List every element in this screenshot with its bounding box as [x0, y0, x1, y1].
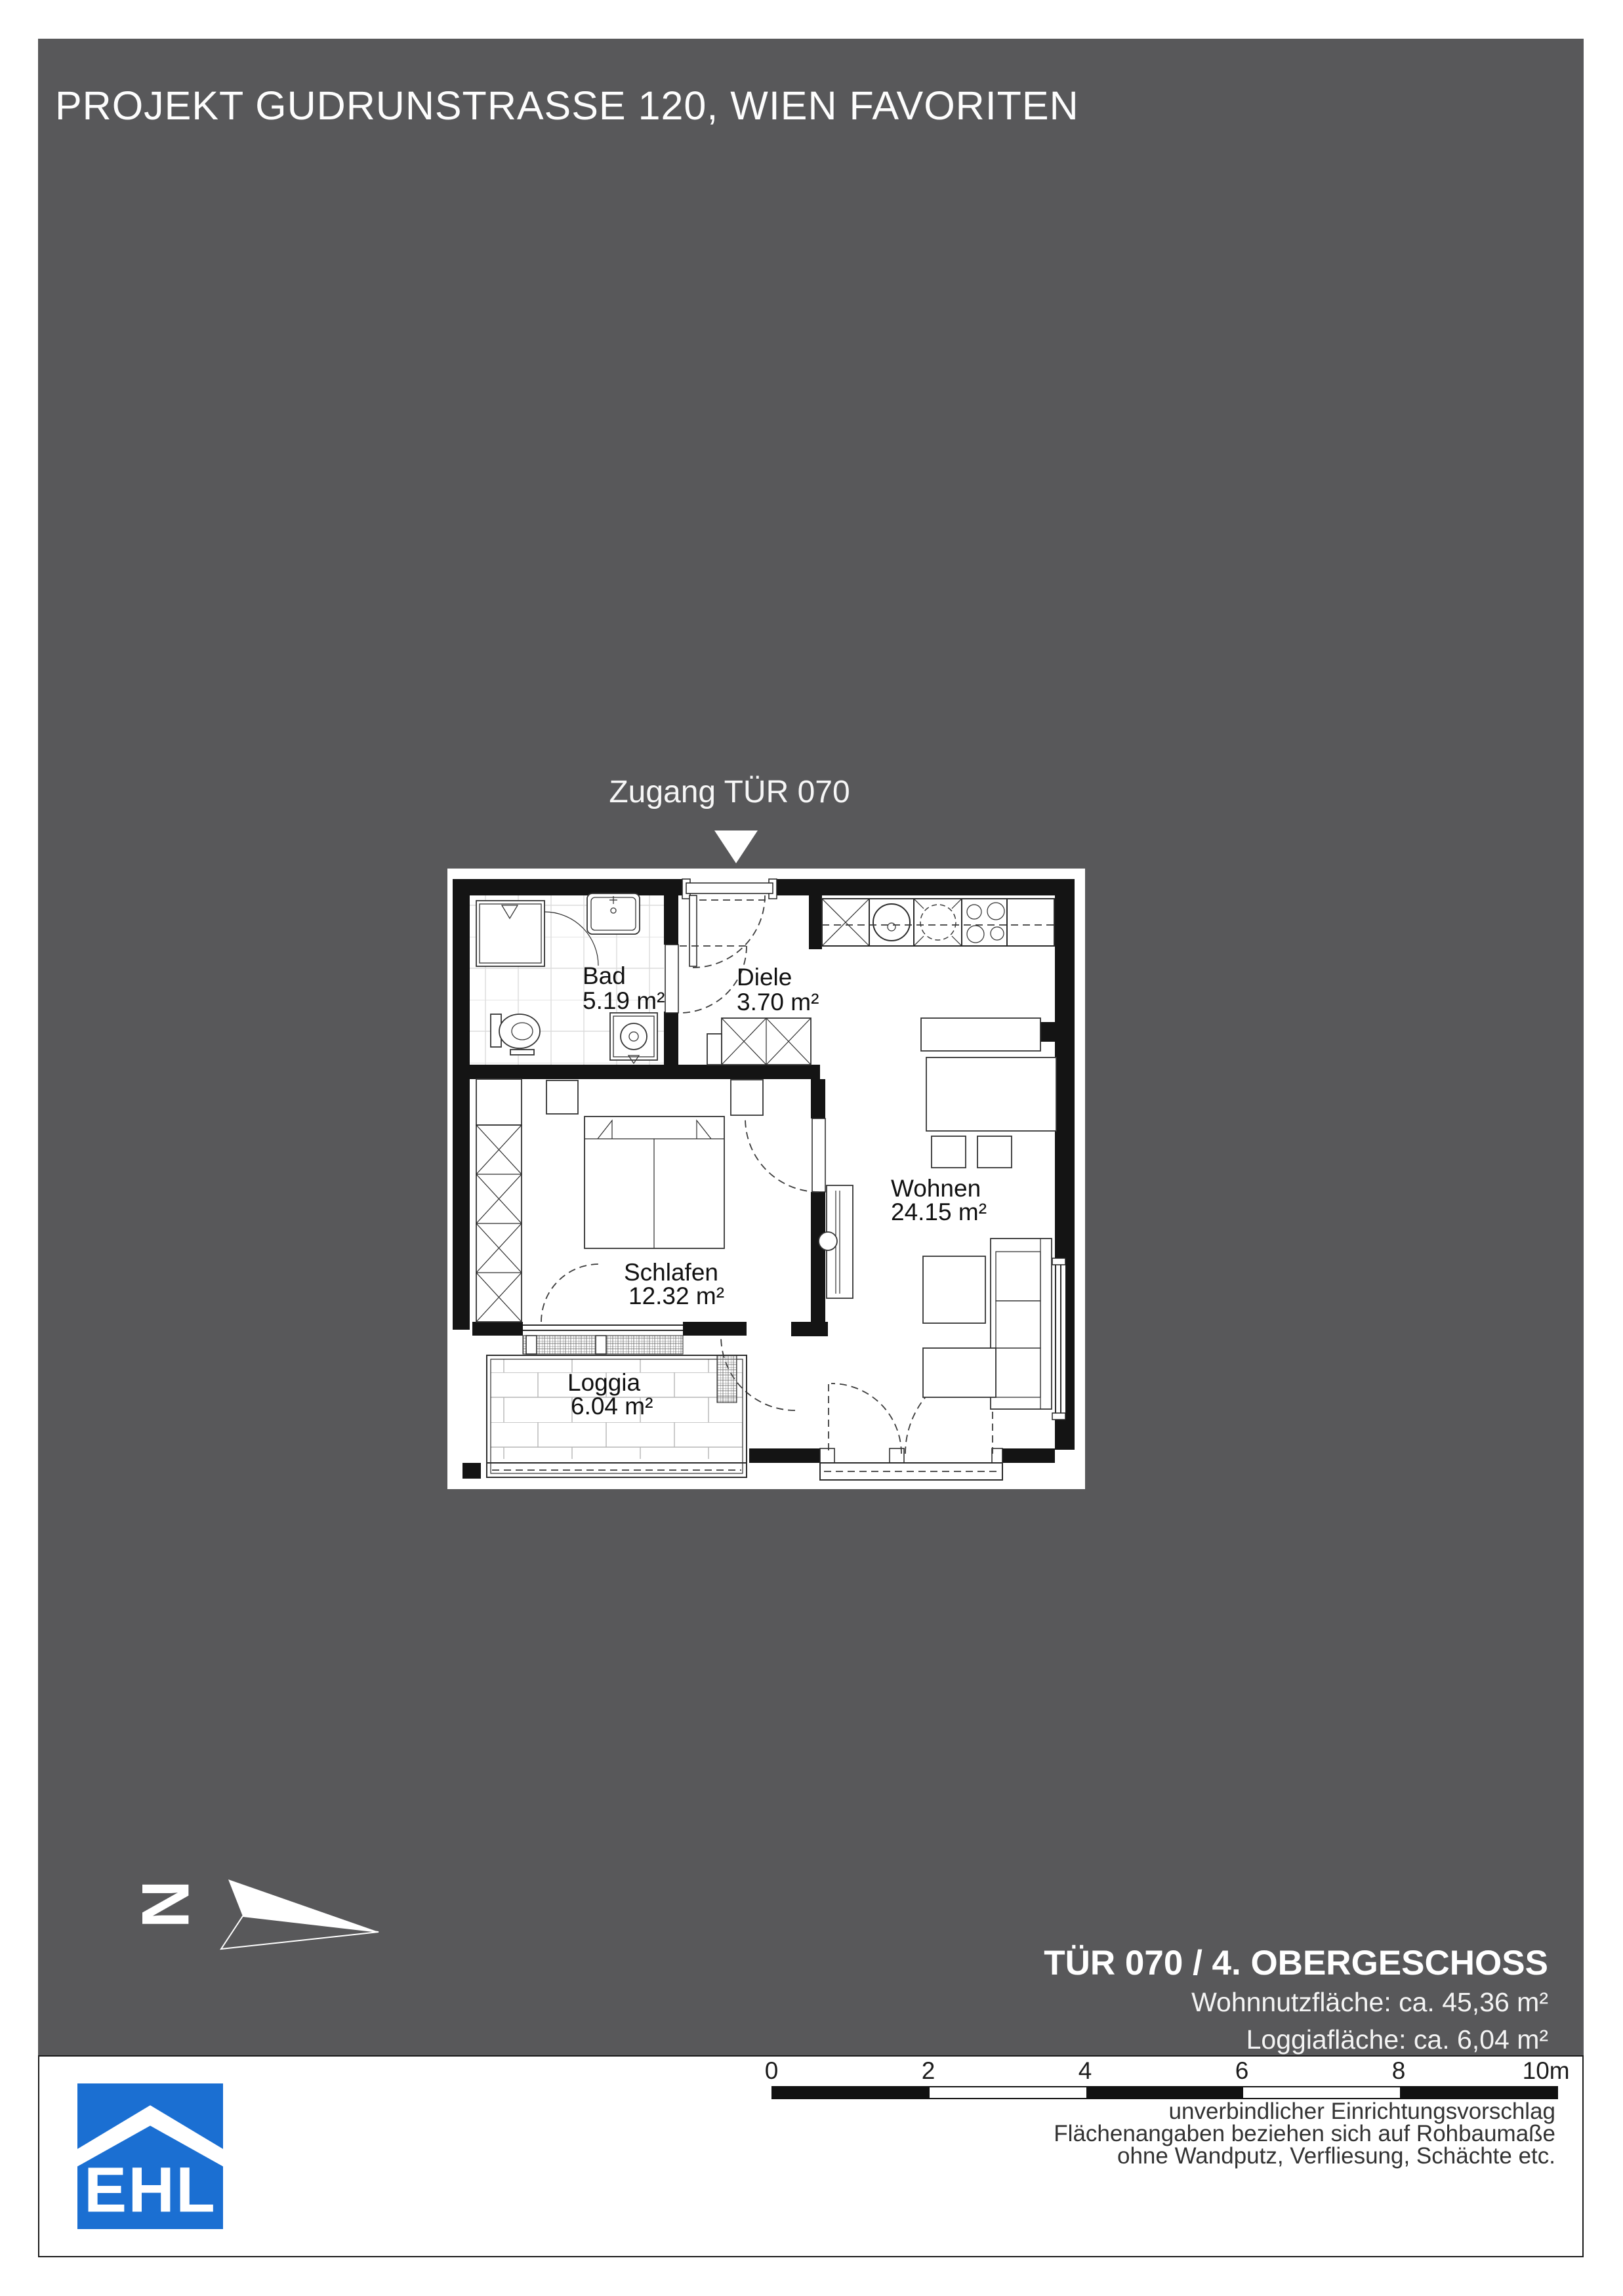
- room-label-loggia: Loggia: [567, 1369, 641, 1396]
- washbasin: [587, 893, 640, 934]
- north-letter: N: [131, 1880, 203, 1929]
- page-title: PROJEKT GUDRUNSTRASSE 120, WIEN FAVORITE…: [55, 83, 1079, 129]
- entrance-triangle-icon: [714, 830, 758, 863]
- scale-tick-10m: 10m: [1523, 2057, 1570, 2085]
- bedroom-closet: [476, 1079, 522, 1322]
- scale-tick-6: 6: [1235, 2057, 1249, 2085]
- room-area-schlafen: 12.32 m²: [628, 1282, 724, 1309]
- unit-title: TÜR 070 / 4. OBERGESCHOSS: [1044, 1943, 1548, 1984]
- kitchen-counter: [822, 899, 1054, 946]
- scale-tick-8: 8: [1392, 2057, 1406, 2085]
- access-door-label: Zugang TÜR 070: [609, 774, 850, 810]
- bedroom-door: [745, 1118, 825, 1192]
- disclaimer-block: unverbindlicher Einrichtungsvorschlag Fl…: [1054, 2101, 1555, 2167]
- disclaimer-line-1: unverbindlicher Einrichtungsvorschlag: [1054, 2101, 1555, 2123]
- nightstand-right: [731, 1080, 763, 1115]
- loggia-area-text: Loggiafläche: ca. 6,04 m²: [1044, 2021, 1548, 2059]
- nightstand-left: [546, 1080, 578, 1114]
- room-label-bad: Bad: [583, 962, 626, 989]
- entrance-door: [682, 879, 777, 968]
- north-arrow-icon: N: [131, 1871, 394, 1956]
- room-area-bad: 5.19 m²: [583, 987, 665, 1014]
- double-bed: [585, 1117, 724, 1248]
- side-window: [1052, 1258, 1065, 1420]
- scale-tick-2: 2: [922, 2057, 935, 2085]
- scale-bar: [771, 2086, 1558, 2099]
- hall-wardrobe: [707, 1018, 811, 1065]
- scale-tick-0: 0: [765, 2057, 779, 2085]
- ehl-logo-text: EHL: [84, 2154, 216, 2225]
- room-area-wohnen: 24.15 m²: [891, 1199, 987, 1225]
- ehl-logo: EHL: [77, 2083, 223, 2229]
- unit-info-block: TÜR 070 / 4. OBERGESCHOSS Wohnnutzfläche…: [1044, 1943, 1548, 2059]
- room-label-diele: Diele: [737, 964, 792, 991]
- room-area-diele: 3.70 m²: [737, 989, 819, 1015]
- disclaimer-line-2: Flächenangaben beziehen sich auf Rohbaum…: [1054, 2123, 1555, 2145]
- floor-plan: Bad 5.19 m² Diele 3.70 m² Wohnen 24.15 m…: [453, 874, 1079, 1484]
- coffee-table: [923, 1256, 985, 1323]
- room-area-loggia: 6.04 m²: [571, 1393, 653, 1420]
- scale-tick-4: 4: [1079, 2057, 1092, 2085]
- dining-set: [921, 1018, 1056, 1168]
- toilet: [491, 1014, 540, 1048]
- disclaimer-line-3: ohne Wandputz, Verfliesung, Schächte etc…: [1054, 2145, 1555, 2167]
- room-label-schlafen: Schlafen: [624, 1259, 718, 1286]
- bath-door: [665, 945, 747, 1013]
- living-area-text: Wohnnutzfläche: ca. 45,36 m²: [1044, 1984, 1548, 2021]
- room-label-wohnen: Wohnen: [891, 1175, 981, 1202]
